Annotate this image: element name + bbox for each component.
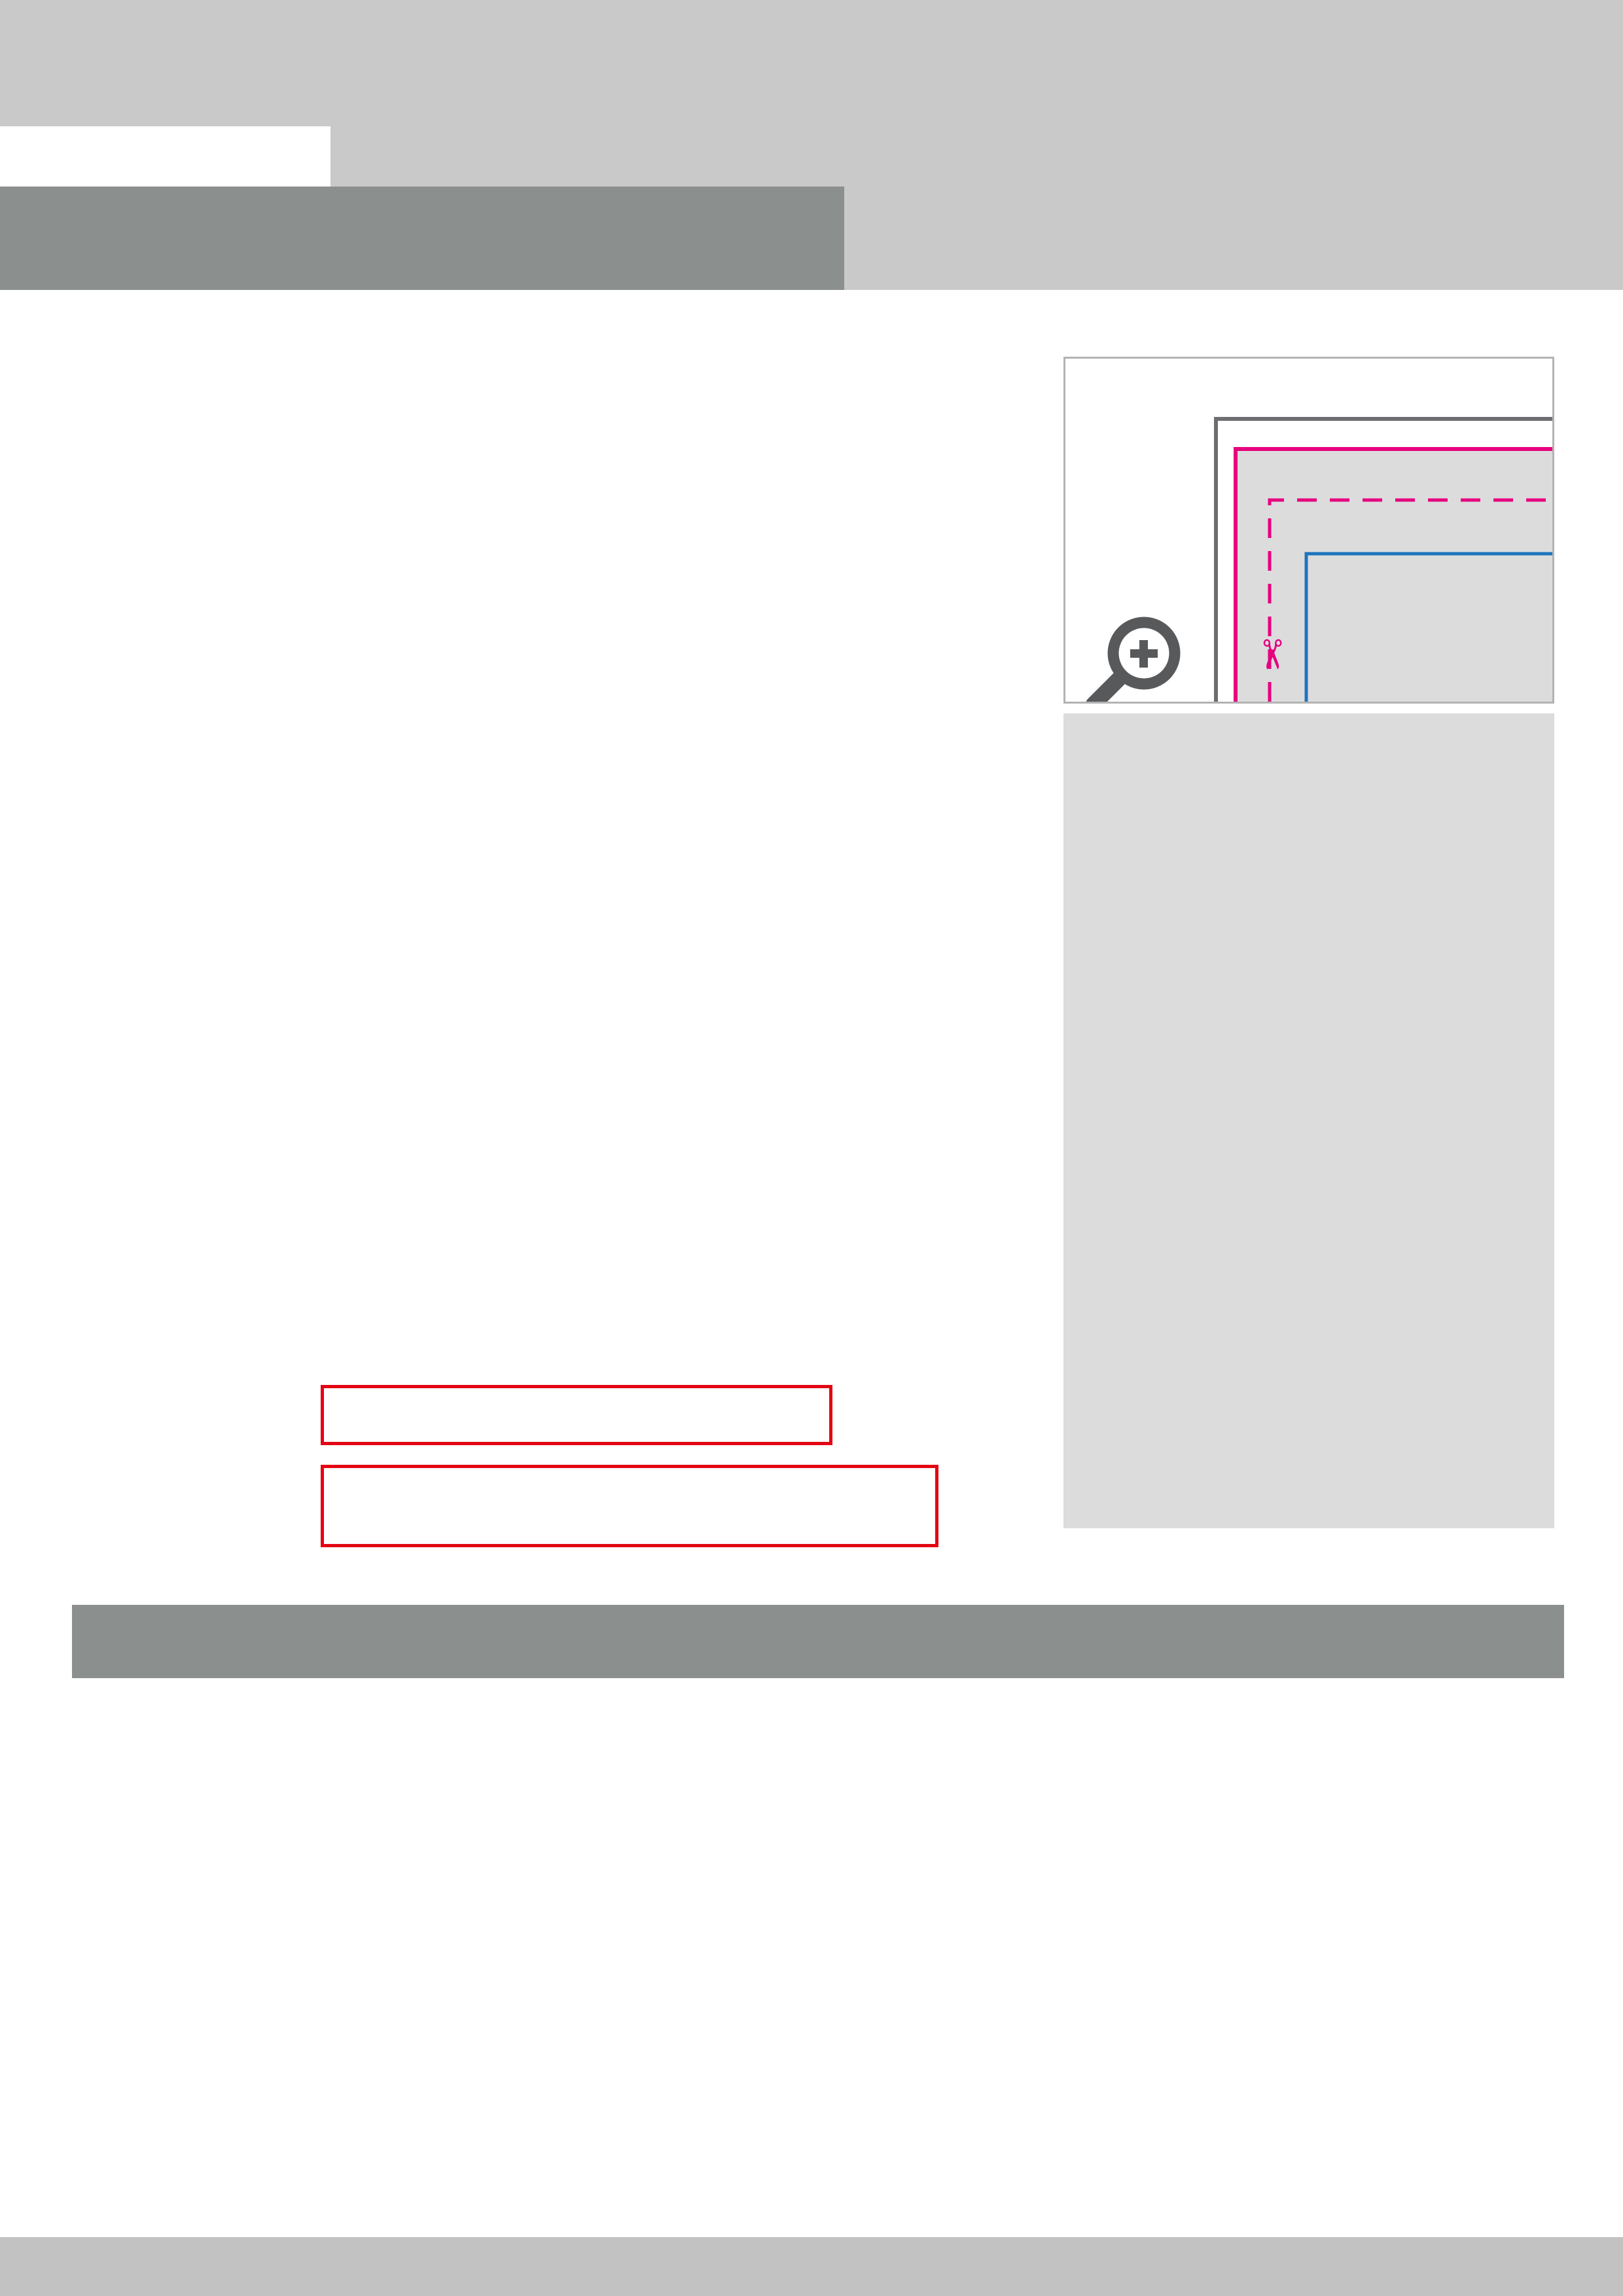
dieline-drawing-front [98, 340, 949, 857]
scissors-icon: ✂ [1249, 637, 1294, 672]
warning-note-template [321, 1465, 938, 1547]
tips-section-title [72, 1605, 1564, 1678]
sheet-label [0, 126, 330, 187]
bleed-trim-fold-detail: ✂ [1216, 419, 1552, 702]
warning-note-glue-areas [321, 1385, 832, 1445]
product-title-banner [0, 187, 844, 290]
magnifier-icon [1094, 622, 1175, 702]
page-footer-band [0, 2237, 1623, 2296]
format-info-panel [1063, 713, 1554, 1528]
dieline-drawing-back [98, 856, 949, 1388]
zoom-detail-box: ✂ [1063, 357, 1554, 704]
zoom-detail-graphic: ✂ [1065, 359, 1552, 702]
